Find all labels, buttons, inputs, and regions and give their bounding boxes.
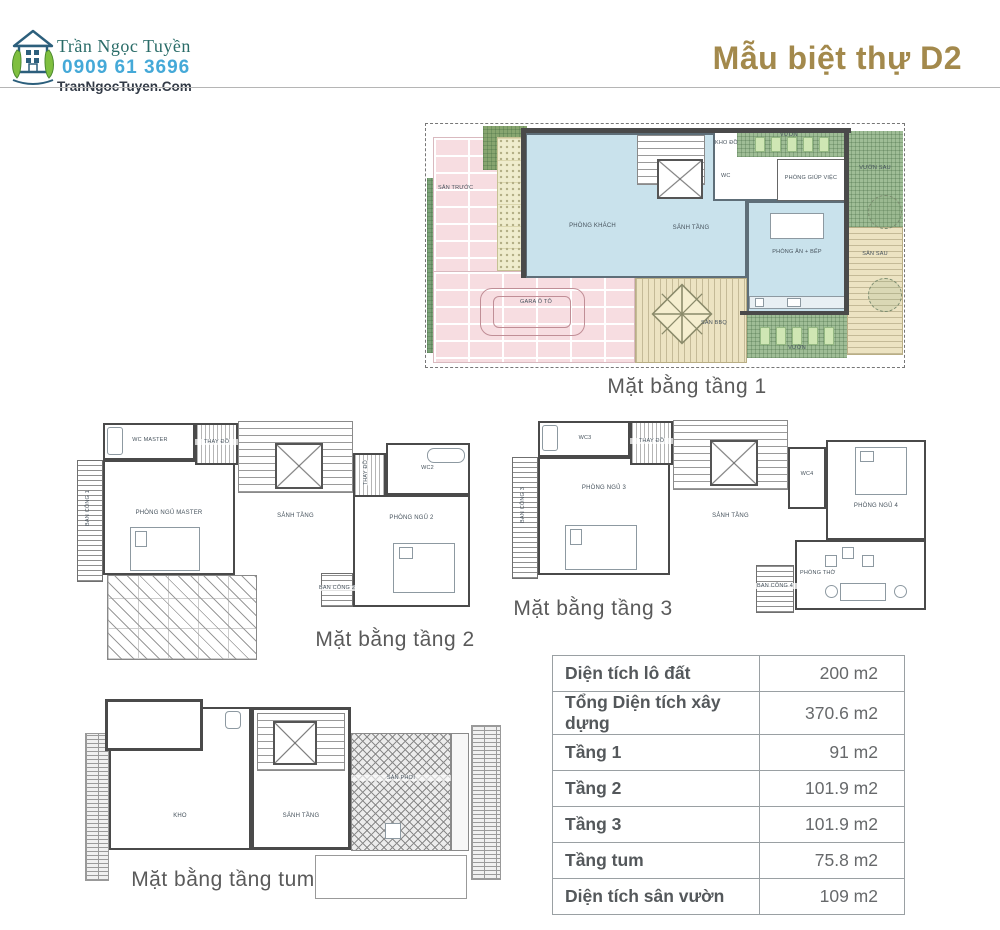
floor1-label-maid-room: PHÒNG GIÚP VIỆC xyxy=(777,175,845,181)
bathtub-icon xyxy=(542,425,558,451)
area-value: 370.6 m2 xyxy=(760,692,905,735)
area-table: Diện tích lô đất 200 m2 Tổng Diện tích x… xyxy=(552,655,905,915)
floor3-label-balcony3: BAN CÔNG 3 xyxy=(520,487,526,523)
floor3-plan: BAN CÔNG 3 PHÒNG NGỦ 3 WC3 THAY ĐỒ SẢNH … xyxy=(510,415,932,625)
floor3-label-balcony4: BAN CÔNG 4 xyxy=(752,583,798,589)
floor2-label-balcony2: BAN CÔNG 2 xyxy=(317,585,357,591)
washing-machine-icon xyxy=(385,823,401,839)
table-row: Diện tích sân vườn 109 m2 xyxy=(553,879,905,915)
floor2-caption: Mặt bằng tầng 2 xyxy=(300,628,490,652)
area-value: 75.8 m2 xyxy=(760,843,905,879)
floor3-label-dressing: THAY ĐỒ xyxy=(630,438,673,444)
elevator-shaft xyxy=(710,440,758,486)
floor2-plan: BAN CÔNG 1 PHÒNG NGỦ MASTER WC MASTER TH… xyxy=(75,415,497,662)
floor3-label-wc3: WC3 xyxy=(560,435,610,441)
area-value: 200 m2 xyxy=(760,656,905,692)
sink-icon xyxy=(787,298,801,307)
floor3-label-hall: SẢNH TẦNG xyxy=(673,513,788,520)
area-label: Tầng 1 xyxy=(553,735,760,771)
floor3-label-worship-room: PHÒNG THỜ xyxy=(800,570,835,576)
cushion-icon xyxy=(842,547,854,559)
tum-lattice-strip xyxy=(451,733,469,851)
tum-roof-strip-left xyxy=(85,733,109,881)
floor1-caption: Mặt bằng tầng 1 xyxy=(557,375,817,399)
elevator-shaft xyxy=(273,721,317,765)
floor1-label-dining: PHÒNG ĂN + BẾP xyxy=(747,249,847,255)
floor1-label-hall: SẢNH TẦNG xyxy=(635,225,747,232)
cushion-icon xyxy=(862,555,874,567)
stove-icon xyxy=(755,298,764,307)
stool-icon xyxy=(825,585,838,598)
table-row: Diện tích lô đất 200 m2 xyxy=(553,656,905,692)
pillow-icon xyxy=(135,531,147,547)
umbrella-icon xyxy=(651,283,713,345)
area-value: 101.9 m2 xyxy=(760,807,905,843)
floor2-label-dressing1: THAY ĐỒ xyxy=(195,439,238,445)
floor1-label-back-yard: SÂN SAU xyxy=(847,251,903,257)
floor1-region-garden-bottom xyxy=(747,313,847,358)
floor2-label-balcony1: BAN CÔNG 1 xyxy=(85,490,91,526)
tum-label-storage: KHO xyxy=(109,813,251,820)
floor3-label-bedroom4: PHÒNG NGỦ 4 xyxy=(826,503,926,510)
wall-segment xyxy=(521,128,851,133)
area-value: 91 m2 xyxy=(760,735,905,771)
floor2-label-wc-master: WC MASTER xyxy=(115,437,185,443)
floor2-label-dressing2: THAY ĐỒ xyxy=(363,460,369,485)
area-label: Tầng tum xyxy=(553,843,760,879)
brand-phone: 0909 61 3696 xyxy=(62,57,190,79)
tum-roof-strip-right xyxy=(471,725,501,880)
bathtub-icon xyxy=(107,427,123,455)
altar-table xyxy=(840,583,886,601)
floor2-label-bedroom2: PHÒNG NGỦ 2 xyxy=(353,515,470,522)
elevator-shaft xyxy=(657,159,703,199)
area-value: 109 m2 xyxy=(760,879,905,915)
floor3-label-bedroom3: PHÒNG NGỦ 3 xyxy=(538,485,670,492)
floor2-label-wc2: WC2 xyxy=(405,465,450,471)
floor1-label-front-yard: SÂN TRƯỚC xyxy=(438,185,473,191)
floor2-label-hall: SẢNH TẦNG xyxy=(238,513,353,520)
floor3-region-wc4 xyxy=(788,447,826,509)
tum-region-drying-yard xyxy=(351,733,451,851)
floor1-label-storage: KHO ĐỒ xyxy=(715,140,738,146)
floor1-label-bbq: SÂN BBQ xyxy=(701,320,727,326)
table-row: Tầng 2 101.9 m2 xyxy=(553,771,905,807)
floor1-label-garage: GARA Ô TÔ xyxy=(520,299,552,305)
brand-logo-icon xyxy=(10,28,56,88)
tree-icon xyxy=(868,195,902,229)
tum-garret xyxy=(105,699,203,751)
floor1-label-garden-bottom: VƯỜN xyxy=(747,345,847,351)
area-label: Tầng 2 xyxy=(553,771,760,807)
wall-segment xyxy=(844,128,849,315)
table-row: Tổng Diện tích xây dựng 370.6 m2 xyxy=(553,692,905,735)
tum-label-hall: SẢNH TẦNG xyxy=(251,813,351,820)
toilet-icon xyxy=(225,711,241,729)
cushion-icon xyxy=(825,555,837,567)
area-value: 101.9 m2 xyxy=(760,771,905,807)
table-row: Tầng 1 91 m2 xyxy=(553,735,905,771)
pillow-icon xyxy=(399,547,413,559)
stool-icon xyxy=(894,585,907,598)
area-label: Tầng 3 xyxy=(553,807,760,843)
tree-icon xyxy=(868,278,902,312)
floor1-label-back-garden: VƯỜN SAU xyxy=(847,165,903,171)
pillow-icon xyxy=(570,529,582,545)
elevator-shaft xyxy=(275,443,323,489)
area-label: Diện tích sân vườn xyxy=(553,879,760,915)
floor1-plan: SÂN TRƯỚC GARA Ô TÔ VƯỜN KHO ĐỒ WC PHÒNG… xyxy=(425,123,907,370)
floor1-label-wc: WC xyxy=(721,173,731,179)
floor3-label-wc4: WC4 xyxy=(788,471,826,477)
tum-label-drying-yard: SÂN PHƠI xyxy=(351,775,451,781)
area-label: Diện tích lô đất xyxy=(553,656,760,692)
bathtub-icon xyxy=(427,448,465,463)
wall-segment xyxy=(740,311,849,315)
wall-segment xyxy=(521,128,526,278)
floor2-region-roof-below xyxy=(107,575,257,660)
header-divider xyxy=(0,87,1000,88)
area-label: Tổng Diện tích xây dựng xyxy=(553,692,760,735)
page-title: Mẫu biệt thự D2 xyxy=(713,40,962,77)
table-row: Tầng 3 101.9 m2 xyxy=(553,807,905,843)
table-row: Tầng tum 75.8 m2 xyxy=(553,843,905,879)
tum-lower-terrace xyxy=(315,855,467,899)
floor2-region-dressing2 xyxy=(353,453,386,497)
floor3-caption: Mặt bằng tầng 3 xyxy=(513,597,673,621)
tum-caption: Mặt bằng tầng tum xyxy=(118,868,328,892)
pillow-icon xyxy=(860,451,874,462)
dining-table xyxy=(770,213,824,239)
brand-name: Trần Ngọc Tuyền xyxy=(57,36,191,57)
floor2-label-master-bedroom: PHÒNG NGỦ MASTER xyxy=(103,510,235,517)
